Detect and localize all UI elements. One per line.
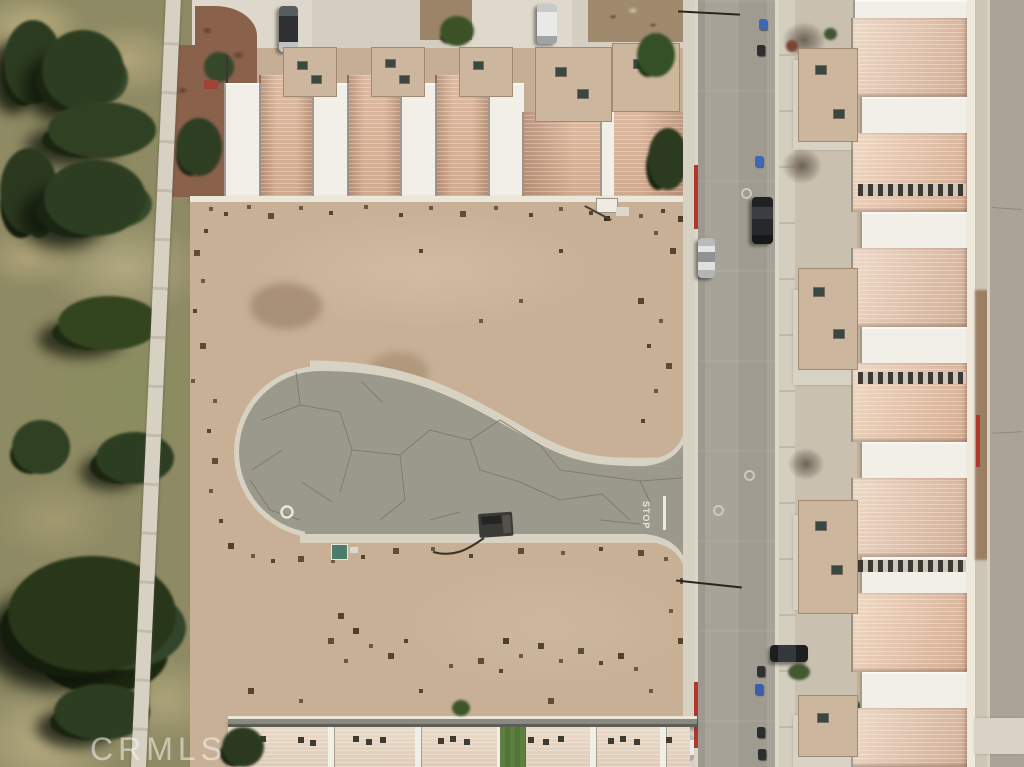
house-roof-white	[860, 442, 968, 478]
ac-unit	[818, 714, 828, 722]
pergola	[858, 560, 966, 572]
house-roof-tile	[853, 593, 971, 672]
trash-bin	[757, 727, 765, 738]
house-roof-tile	[853, 18, 971, 97]
work-vehicle	[478, 512, 514, 538]
trash-bin-blue	[755, 156, 763, 167]
bush-red	[786, 40, 798, 52]
main-street	[697, 0, 777, 767]
backyard-lawn	[500, 727, 526, 767]
ac-unit	[832, 566, 842, 574]
ac-unit	[814, 288, 824, 296]
trash-bin-blue	[759, 19, 767, 30]
trash-bin	[757, 45, 765, 56]
house-roof-tan	[798, 268, 858, 370]
curb	[695, 0, 698, 767]
tree	[222, 727, 264, 767]
parked-suv-dark	[752, 197, 773, 244]
bare-tree	[782, 148, 822, 184]
trash-bin-blue	[755, 684, 763, 695]
house-roof-white	[860, 672, 968, 708]
parked-car-silver	[698, 238, 715, 278]
far-right-street	[987, 0, 1024, 767]
red-curb	[694, 682, 698, 748]
pergola	[858, 184, 966, 196]
manhole-cover	[713, 505, 724, 516]
ac-unit	[834, 110, 844, 118]
trash-bin	[758, 749, 766, 760]
house-roof-white	[853, 0, 971, 18]
manhole-cover	[741, 188, 752, 199]
roof-gap	[590, 727, 596, 767]
house-roof-white	[860, 97, 968, 133]
roof-gap	[328, 727, 334, 767]
house-roof-white	[860, 327, 968, 363]
aerial-photo: STOP	[0, 0, 1024, 767]
roof-gap	[415, 727, 421, 767]
driveway-cut	[975, 718, 1024, 754]
red-curb	[976, 415, 980, 467]
parked-car-driveway	[770, 645, 808, 662]
block-wall	[967, 0, 975, 767]
stop-line	[663, 496, 666, 530]
red-curb	[694, 165, 698, 229]
house-roof-tile	[853, 478, 971, 557]
lot-wall-south	[228, 716, 697, 727]
ac-unit	[816, 66, 826, 74]
house-roof-tile	[853, 708, 971, 767]
ac-unit	[816, 522, 826, 530]
house-roof-tan	[798, 500, 858, 614]
trash-bin	[757, 666, 765, 677]
bare-tree	[788, 448, 824, 480]
shed-canopy	[331, 544, 348, 560]
bottom-houses-roofs	[228, 727, 690, 767]
house-roof-tile	[853, 248, 971, 327]
bush	[788, 664, 810, 680]
pergola	[858, 372, 966, 384]
tree	[452, 700, 470, 716]
equipment-item	[350, 547, 358, 553]
house-roof-tan	[798, 695, 858, 757]
roof-gap	[660, 727, 666, 767]
crmls-watermark: CRMLS	[90, 731, 227, 767]
stop-marking: STOP	[641, 501, 651, 529]
house-roof-tile	[853, 133, 971, 212]
manhole-cover	[744, 470, 755, 481]
house-roof-tan	[798, 48, 858, 142]
ac-unit	[834, 330, 844, 338]
house-roof-white	[860, 212, 968, 248]
bush	[824, 28, 837, 40]
roof-vents	[0, 0, 2, 2]
